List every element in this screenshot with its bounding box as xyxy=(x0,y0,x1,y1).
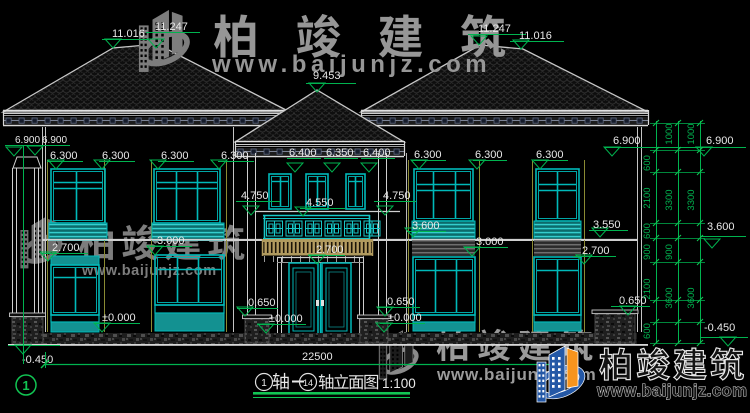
svg-text:11.016: 11.016 xyxy=(519,30,552,42)
svg-text:±0.000: ±0.000 xyxy=(388,312,422,324)
svg-text:±0.000: ±0.000 xyxy=(269,313,303,325)
svg-text:2100: 2100 xyxy=(642,278,653,299)
svg-text:0.650: 0.650 xyxy=(387,296,415,308)
svg-text:3.550: 3.550 xyxy=(593,219,621,231)
svg-text:www.baijunjz.com: www.baijunjz.com xyxy=(211,51,491,78)
svg-text:9.453: 9.453 xyxy=(313,70,341,82)
svg-text:3600: 3600 xyxy=(664,287,675,308)
svg-text:11.247: 11.247 xyxy=(155,21,188,33)
svg-text:4.750: 4.750 xyxy=(383,190,411,202)
svg-text:11.016: 11.016 xyxy=(112,28,145,40)
svg-text:600: 600 xyxy=(642,323,653,339)
svg-text:3.000: 3.000 xyxy=(476,236,504,248)
svg-text:2.700: 2.700 xyxy=(52,242,80,254)
svg-text:1:100: 1:100 xyxy=(382,376,416,391)
svg-text:6.300: 6.300 xyxy=(414,149,442,161)
svg-text:3300: 3300 xyxy=(686,189,697,210)
svg-text:4.550: 4.550 xyxy=(306,197,334,209)
svg-text:11.247: 11.247 xyxy=(478,23,511,35)
svg-text:6.350: 6.350 xyxy=(326,147,354,159)
svg-text:1: 1 xyxy=(261,378,267,389)
svg-text:±0.000: ±0.000 xyxy=(102,312,136,324)
svg-text:2.700: 2.700 xyxy=(582,245,610,257)
svg-text:600: 600 xyxy=(642,155,653,171)
svg-text:6.300: 6.300 xyxy=(221,150,249,162)
svg-text:22500: 22500 xyxy=(302,351,333,363)
svg-text:www.baijunjz.com: www.baijunjz.com xyxy=(81,263,217,279)
svg-text:6.300: 6.300 xyxy=(161,150,189,162)
svg-text:3.600: 3.600 xyxy=(412,220,440,232)
svg-text:1000: 1000 xyxy=(686,123,697,144)
svg-text:6.400: 6.400 xyxy=(289,147,317,159)
svg-text:14: 14 xyxy=(303,378,313,388)
svg-text:6.900: 6.900 xyxy=(706,135,734,147)
svg-text:6.300: 6.300 xyxy=(102,150,130,162)
svg-text:6.300: 6.300 xyxy=(50,150,78,162)
svg-text:-0.450: -0.450 xyxy=(704,322,735,334)
svg-text:6.900: 6.900 xyxy=(42,135,67,146)
svg-text:2100: 2100 xyxy=(642,187,653,208)
svg-text:1: 1 xyxy=(22,378,29,393)
svg-text:6.300: 6.300 xyxy=(475,149,503,161)
svg-text:900: 900 xyxy=(664,244,675,260)
svg-text:6.900: 6.900 xyxy=(613,135,641,147)
svg-text:900: 900 xyxy=(642,244,653,260)
svg-text:3.600: 3.600 xyxy=(707,221,735,233)
svg-text:6.300: 6.300 xyxy=(536,149,564,161)
svg-text:1000: 1000 xyxy=(664,123,675,144)
svg-text:www.baijunjz.com: www.baijunjz.com xyxy=(596,382,747,400)
svg-text:600: 600 xyxy=(642,223,653,239)
svg-text:0.650: 0.650 xyxy=(248,297,276,309)
svg-text:3300: 3300 xyxy=(664,189,675,210)
svg-text:3.000: 3.000 xyxy=(157,235,185,247)
svg-text:3600: 3600 xyxy=(686,287,697,308)
svg-text:6.400: 6.400 xyxy=(363,147,391,159)
svg-text:4.750: 4.750 xyxy=(241,190,269,202)
svg-text:2.700: 2.700 xyxy=(316,244,344,256)
svg-text:6.900: 6.900 xyxy=(15,135,40,146)
